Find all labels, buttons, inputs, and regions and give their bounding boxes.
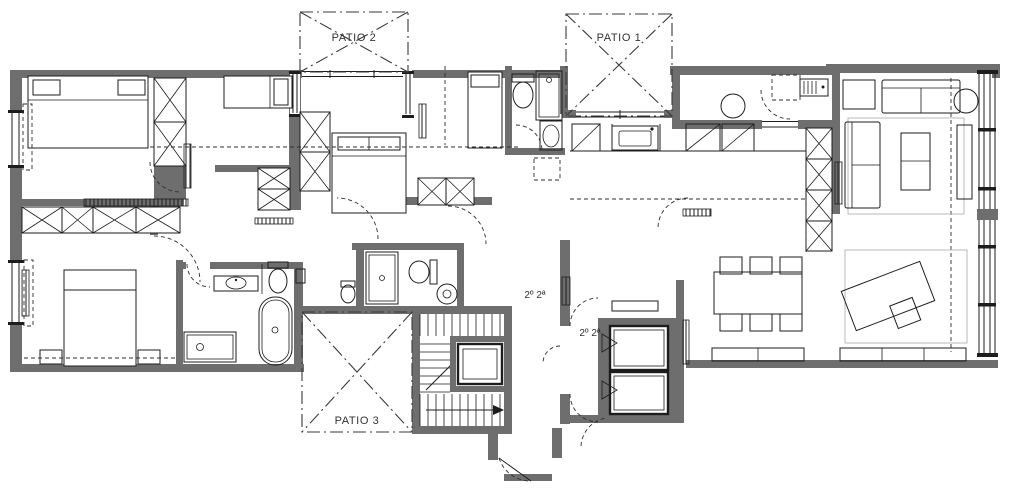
- unit-label-lobby: 2º 2ª: [579, 328, 601, 339]
- elevator-shaft-1: [610, 326, 668, 370]
- wardrobe-column-bed1: [154, 78, 186, 166]
- window-kitchen-patio1: [576, 110, 664, 119]
- dining-area: [712, 250, 967, 361]
- sofa-horizontal: [882, 80, 960, 113]
- stove: [800, 79, 828, 96]
- bed-single-2: [224, 76, 292, 108]
- bed-master-bottom-left: [40, 270, 160, 366]
- doormat: [612, 301, 658, 311]
- kitchen-open-boundary: [570, 199, 806, 254]
- stair-core: [420, 314, 510, 426]
- washing-machine: [437, 284, 457, 304]
- toilet-top: [512, 74, 534, 108]
- low-benches: [712, 348, 966, 361]
- desk-rug: [845, 250, 967, 343]
- dining-table: [714, 272, 802, 314]
- nightstand-right: [138, 350, 160, 364]
- toilet-middle: [409, 260, 437, 284]
- wardrobe-row-bed1: [22, 207, 180, 233]
- plant: [954, 89, 978, 113]
- patio-3-label: PATIO 3: [335, 415, 380, 427]
- living-rug: [848, 118, 964, 214]
- vanity-counter: [214, 276, 258, 291]
- elevator-shaft-2: [610, 372, 668, 414]
- breakfast-room: [721, 75, 828, 118]
- washer-dashed: [534, 158, 560, 180]
- elevator: [450, 336, 510, 392]
- unit-label-stair: 2º 2ª: [524, 290, 546, 301]
- entry-lobby: 2º 2ª 2º 2ª: [524, 290, 668, 414]
- fridge-dashed: [772, 75, 800, 100]
- patio-1-label: PATIO 1: [597, 32, 642, 44]
- bed-single-b: [468, 72, 502, 148]
- bathroom-bottom-left: [184, 262, 305, 365]
- coffee-table: [901, 133, 930, 190]
- wardrobe-room-a: [300, 112, 330, 191]
- floor-plan-svg: PATIO 2 PATIO 1 PATIO 3 2º 2ª 2º 2ª: [0, 0, 1009, 488]
- bathtub: [259, 297, 292, 365]
- desk-rotated: [841, 261, 939, 342]
- door-swings: [150, 90, 790, 481]
- window-breakfast: [762, 119, 798, 129]
- nightstand-left: [40, 350, 62, 364]
- patio-2-label: PATIO 2: [332, 32, 377, 44]
- window-left-1: [8, 110, 24, 168]
- window-patio2-band: [302, 70, 406, 78]
- shower-top: [536, 71, 562, 120]
- sink-top: [540, 121, 562, 150]
- patio-2: PATIO 2: [300, 12, 408, 72]
- floor-plan-canvas: PATIO 2 PATIO 1 PATIO 3 2º 2ª 2º 2ª: [0, 0, 1009, 488]
- sofa-vertical: [845, 122, 880, 208]
- pantry-column: [806, 128, 832, 251]
- living-room: [843, 80, 978, 214]
- toilet-wc-nook: [341, 281, 355, 303]
- shower-bottom: [184, 332, 236, 362]
- window-patio2-right: [402, 71, 414, 118]
- kitchen: [570, 75, 828, 254]
- wardrobe-bed2: [258, 168, 290, 210]
- kitchen-sink: [612, 126, 658, 150]
- breakfast-table: [721, 94, 745, 118]
- bed-room-a: [332, 133, 406, 213]
- shower-middle: [366, 252, 398, 304]
- dining-chairs: [720, 257, 802, 331]
- patio-3: PATIO 3: [302, 312, 412, 432]
- wardrobe-room-b: [418, 178, 474, 205]
- side-table: [843, 80, 875, 109]
- bed-master-top-left: [28, 76, 148, 148]
- patio-1: PATIO 1: [566, 14, 672, 116]
